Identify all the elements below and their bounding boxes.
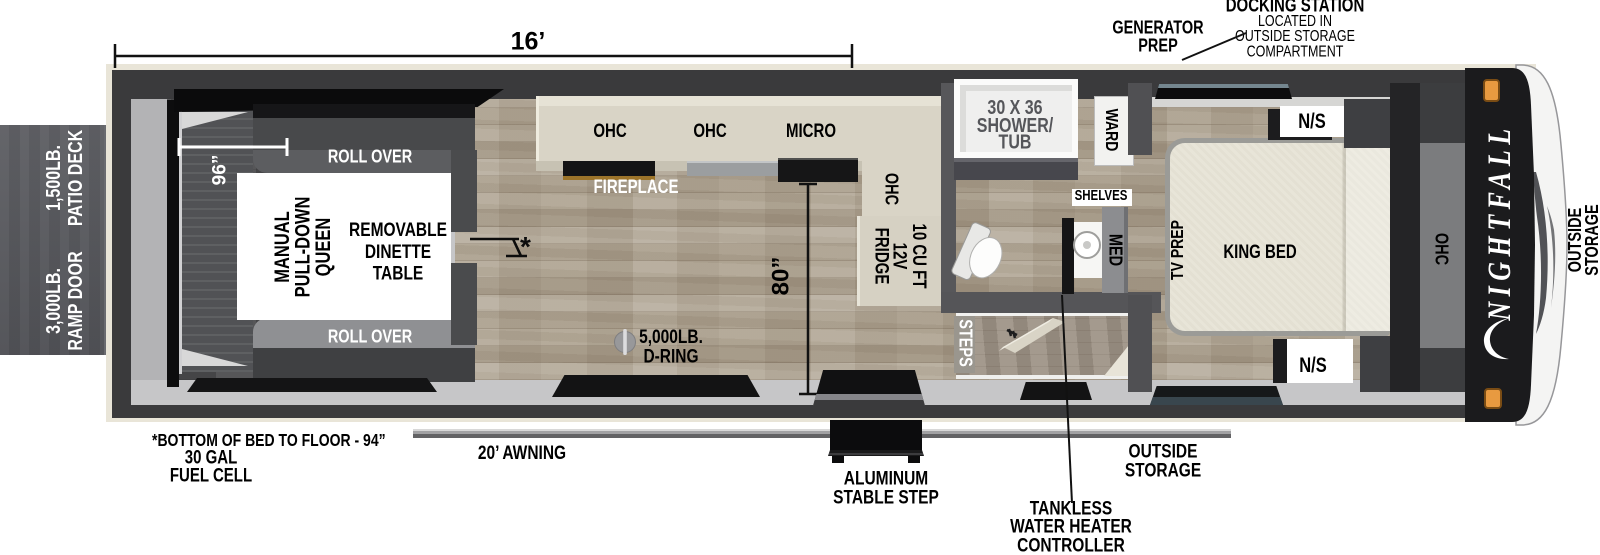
svg-text:*: * (520, 232, 531, 262)
